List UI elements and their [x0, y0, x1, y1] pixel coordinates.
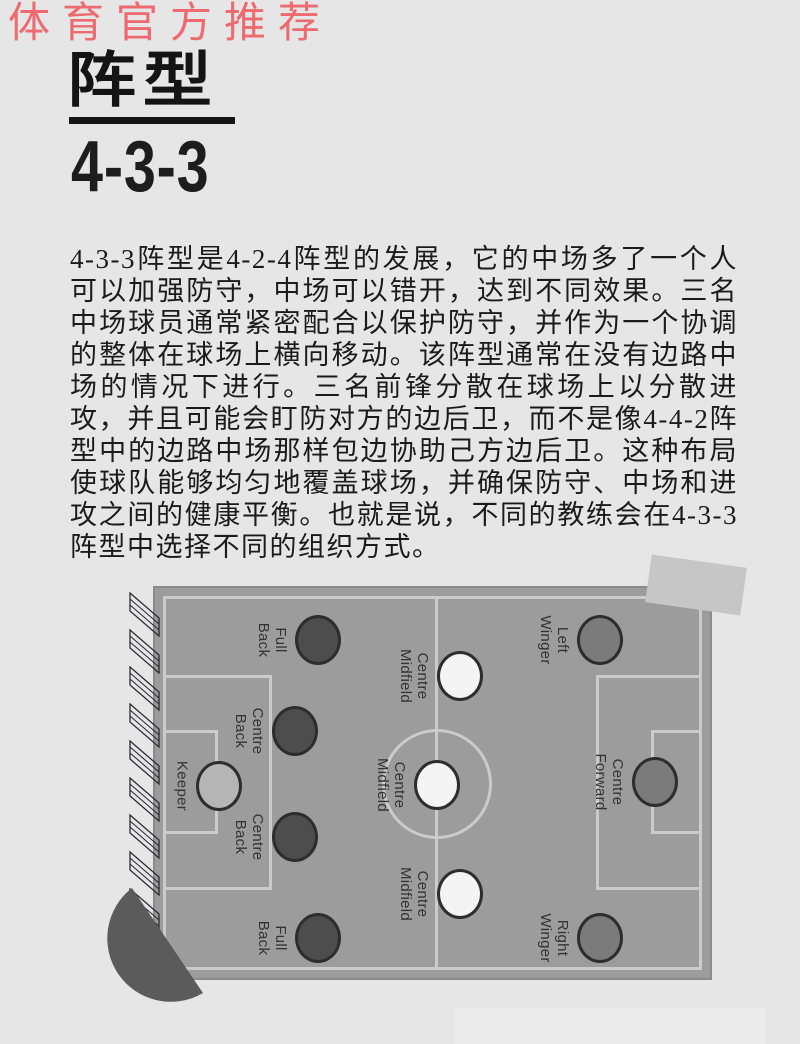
player-circle — [632, 757, 678, 807]
player-circle — [295, 913, 341, 963]
player-circle — [437, 651, 483, 701]
player-circle — [577, 615, 623, 665]
player-circle — [295, 615, 341, 665]
player-label: Right Winger — [537, 913, 571, 962]
player-label: Keeper — [173, 761, 190, 811]
title-underline — [69, 117, 235, 124]
player-circle — [414, 760, 460, 810]
article-body: 4-3-3阵型是4-2-4阵型的发展，它的中场多了一个人可以加强防守，中场可以错… — [70, 243, 738, 563]
player-label: Full Back — [255, 921, 289, 956]
watermark-text: 体育官方推荐 — [8, 0, 332, 48]
player-label: Centre Back — [232, 708, 266, 755]
player-circle — [437, 869, 483, 919]
page-title: 阵型 — [67, 50, 219, 112]
player-label: Centre Midfield — [374, 758, 408, 812]
player-circle — [196, 761, 242, 811]
player-label: Centre Forward — [592, 753, 626, 810]
player-label: Full Back — [255, 623, 289, 658]
player-circle — [577, 913, 623, 963]
formation-heading: 4-3-3 — [71, 132, 209, 202]
faint-highlight-decoration — [455, 1008, 765, 1044]
player-label: Centre Back — [232, 814, 266, 861]
player-label: Centre Midfield — [397, 867, 431, 921]
poster-canvas: 体育官方推荐 阵型 4-3-3 4-3-3阵型是4-2-4阵型的发展，它的中场多… — [0, 0, 800, 1044]
player-label: Centre Midfield — [397, 649, 431, 703]
corner-fan-decoration — [95, 878, 217, 1016]
player-circle — [272, 706, 318, 756]
pitch: KeeperFull BackCentre BackCentre BackFul… — [153, 586, 712, 980]
player-label: Left Winger — [537, 615, 571, 664]
player-circle — [272, 812, 318, 862]
